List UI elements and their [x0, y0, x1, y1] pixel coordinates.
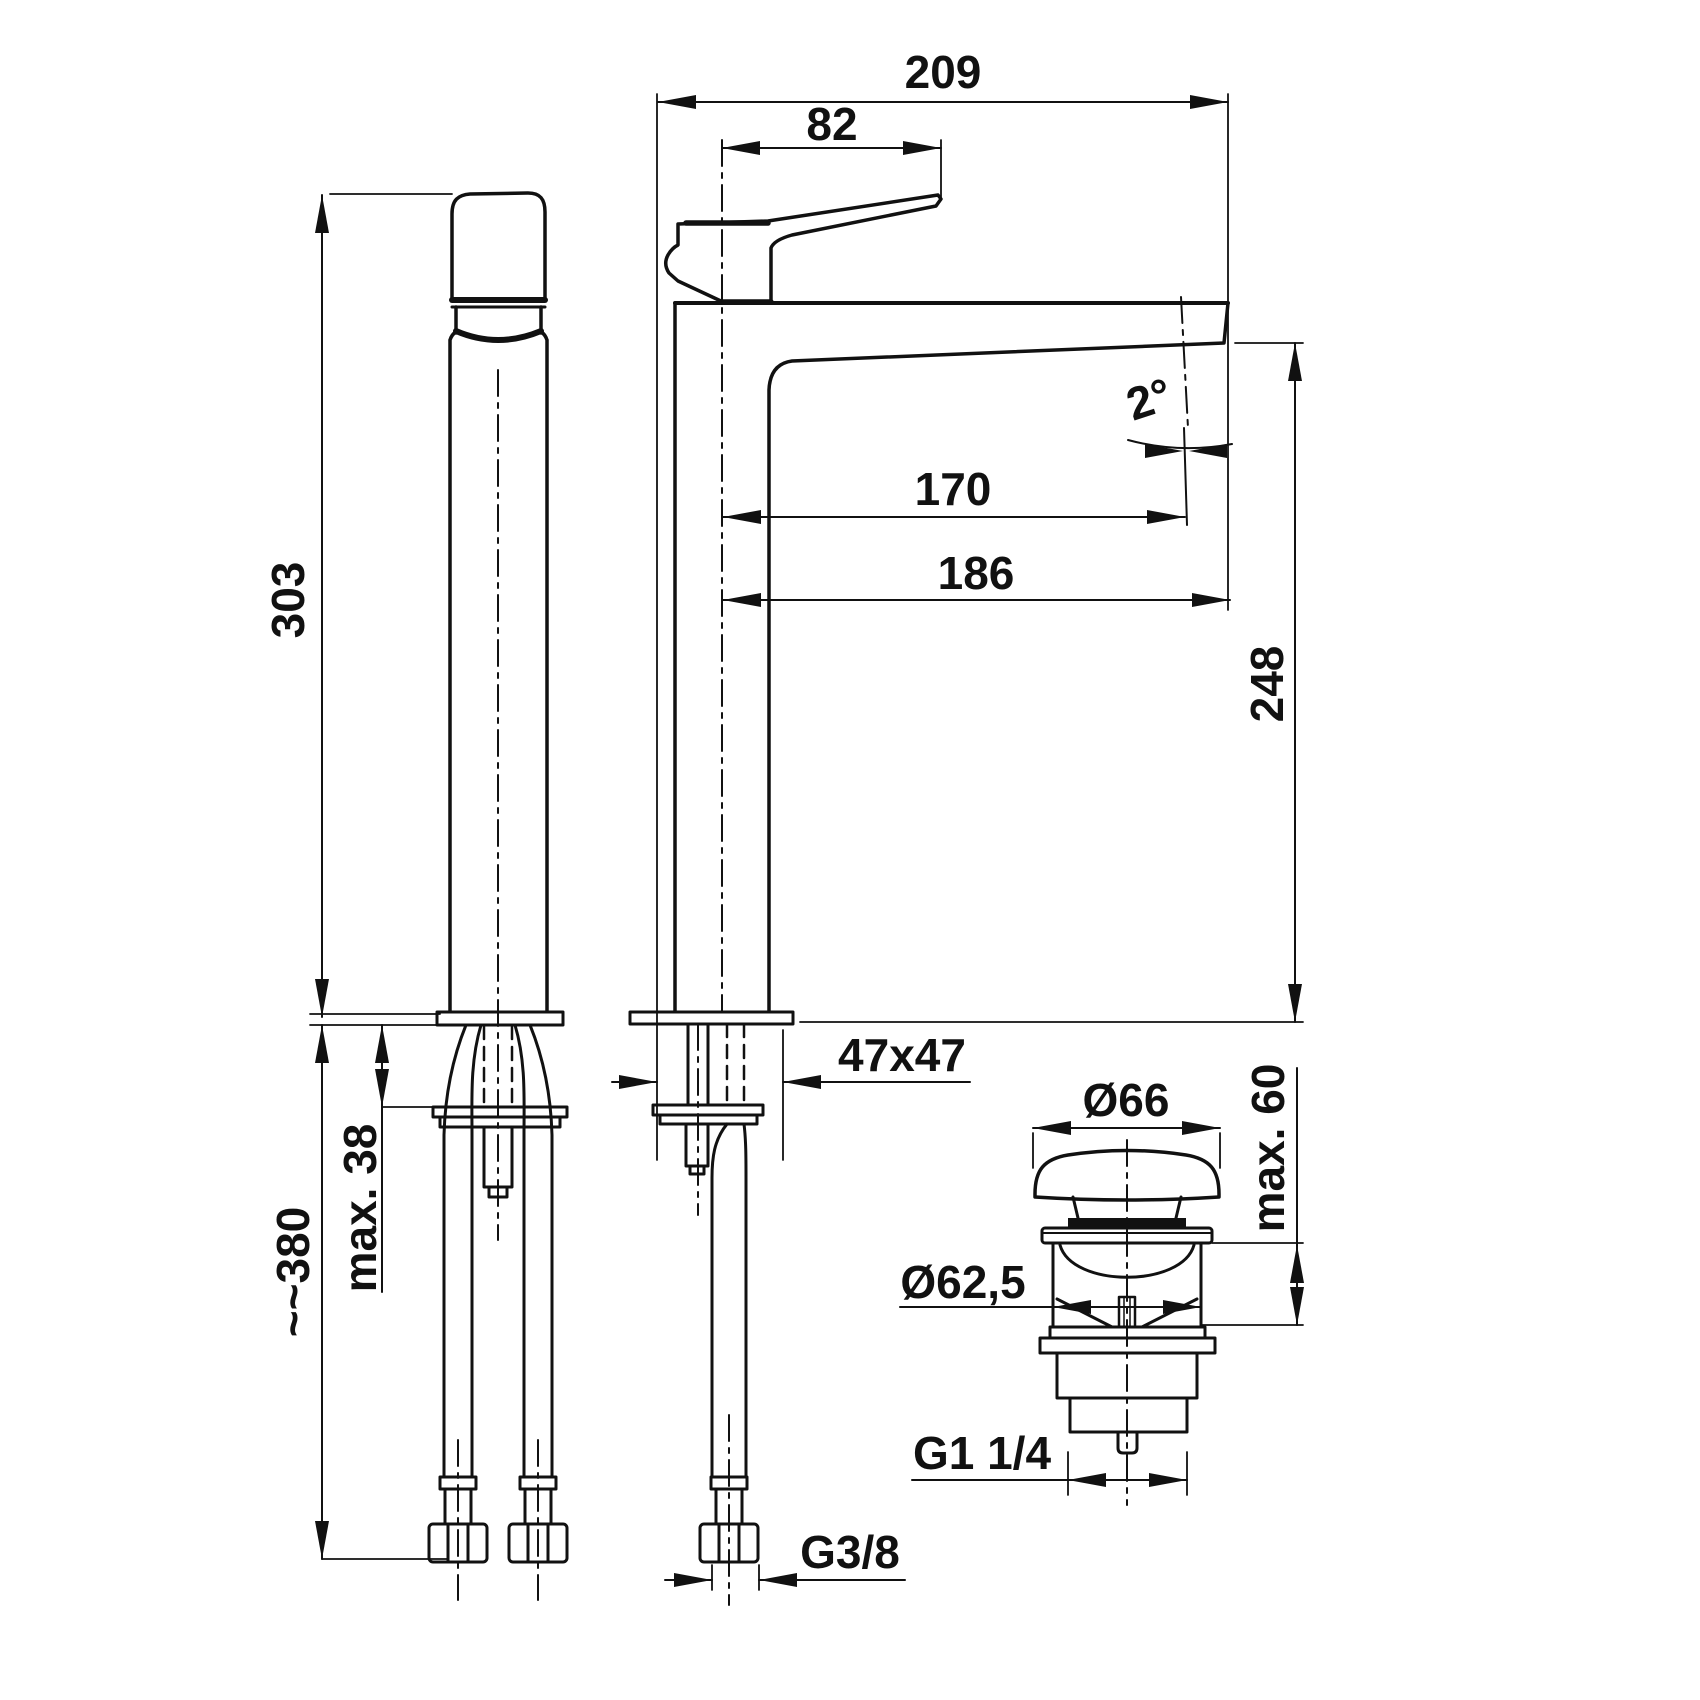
handle-cap	[452, 193, 545, 300]
dim-label-total-depth: 209	[905, 49, 982, 95]
base-flange-front	[630, 1012, 793, 1024]
dimension-annotations	[310, 94, 1304, 1590]
dim-label-waste-thread: G1 1/4	[913, 1430, 1051, 1476]
dim-label-deck-thickness-max: max. 38	[337, 1124, 383, 1293]
dim-label-spout-height: 248	[1244, 646, 1290, 723]
handle-collar	[456, 307, 541, 333]
dim-label-body-height: 303	[265, 562, 311, 639]
base-flange-side	[437, 1012, 563, 1025]
dim-label-waste-cap-diameter: Ø66	[1083, 1077, 1170, 1123]
waste-assembly	[1035, 1140, 1219, 1505]
waste-thread-section	[1070, 1398, 1187, 1432]
dim-label-hose-length: ~~380	[270, 1207, 316, 1337]
hose-fittings-side	[429, 1477, 567, 1562]
drawing-sheet: 209 82 2° 170 186 248 303 max. 38 ~~380 …	[0, 0, 1700, 1700]
dim-label-handle-length: 82	[806, 101, 857, 147]
dim-label-waste-body-diameter: Ø62,5	[900, 1259, 1025, 1305]
dim-label-spout-reach: 170	[915, 466, 992, 512]
side-view	[429, 193, 567, 1600]
dim-label-hose-thread: G3/8	[800, 1529, 900, 1575]
dim-label-base-cross-section: 47x47	[838, 1032, 966, 1078]
drawing-canvas	[0, 0, 1700, 1700]
lever-handle	[666, 195, 941, 302]
dim-label-waste-deck-max: max. 60	[1245, 1064, 1291, 1233]
dim-label-spout-reach-outer: 186	[938, 550, 1015, 596]
